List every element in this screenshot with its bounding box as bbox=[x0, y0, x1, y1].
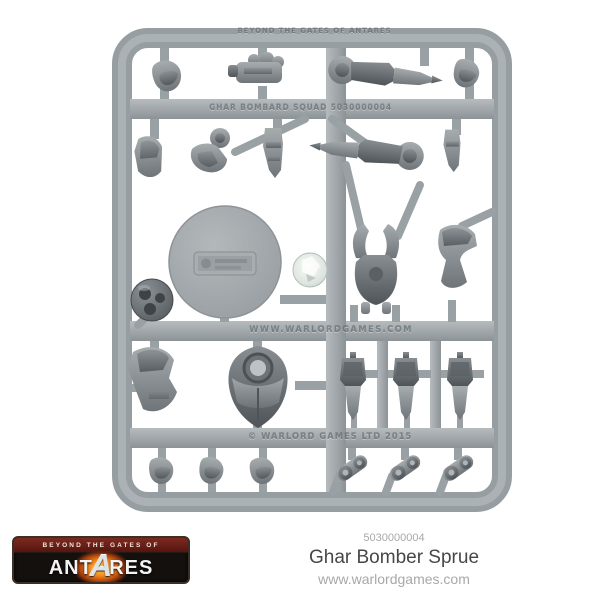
part-bomb-pod-3 bbox=[447, 352, 473, 420]
part-head-bottom-2 bbox=[197, 456, 225, 486]
embossed-text-middle: WWW.WARLORDGAMES.COM bbox=[220, 325, 442, 335]
antares-logo: BEYOND THE GATES OF ANT A RES bbox=[12, 536, 190, 584]
part-turret bbox=[228, 52, 284, 83]
embossed-text-bottom: © WARLORD GAMES LTD 2015 bbox=[226, 432, 434, 442]
logo-brand-left: ANT bbox=[49, 557, 93, 580]
product-name: Ghar Bomber Sprue bbox=[294, 546, 494, 569]
part-bomb-pod-2 bbox=[393, 352, 419, 420]
logo-brand-row: ANT A RES bbox=[14, 553, 188, 583]
part-claw-small bbox=[438, 225, 477, 288]
part-head-top-left bbox=[150, 58, 183, 93]
embossed-text-upper: GHAR BOMBARD SQUAD 5030000004 bbox=[183, 103, 418, 112]
part-head-bottom-3 bbox=[249, 456, 276, 485]
part-torso-small bbox=[263, 128, 283, 178]
part-armour-plate bbox=[133, 135, 164, 178]
part-leg-mid bbox=[308, 131, 425, 171]
embossed-text-top: BEYOND THE GATES OF ANTARES bbox=[222, 27, 407, 35]
part-torso-right bbox=[444, 130, 461, 173]
part-bomb-sphere bbox=[131, 279, 173, 321]
part-base-disc bbox=[169, 206, 281, 318]
part-armour-large bbox=[128, 347, 177, 411]
part-head-bottom-1 bbox=[149, 457, 173, 484]
logo-brand-a: A bbox=[90, 548, 112, 584]
product-sku: 5030000004 bbox=[294, 532, 494, 545]
product-website: www.warlordgames.com bbox=[294, 570, 494, 588]
product-text-block: 5030000004 Ghar Bomber Sprue www.warlord… bbox=[294, 532, 494, 588]
sprue-image bbox=[0, 0, 600, 600]
product-photo: BEYOND THE GATES OF ANTARES GHAR BOMBARD… bbox=[0, 0, 600, 600]
logo-brand-right: RES bbox=[109, 557, 153, 580]
part-claw-large bbox=[353, 224, 399, 314]
part-bomber-hull bbox=[228, 346, 287, 428]
part-clear-lens bbox=[293, 253, 327, 287]
caption-bar: BEYOND THE GATES OF ANT A RES 5030000004… bbox=[0, 520, 600, 600]
part-arm-joint bbox=[191, 128, 230, 172]
part-head-top-right bbox=[450, 57, 482, 90]
